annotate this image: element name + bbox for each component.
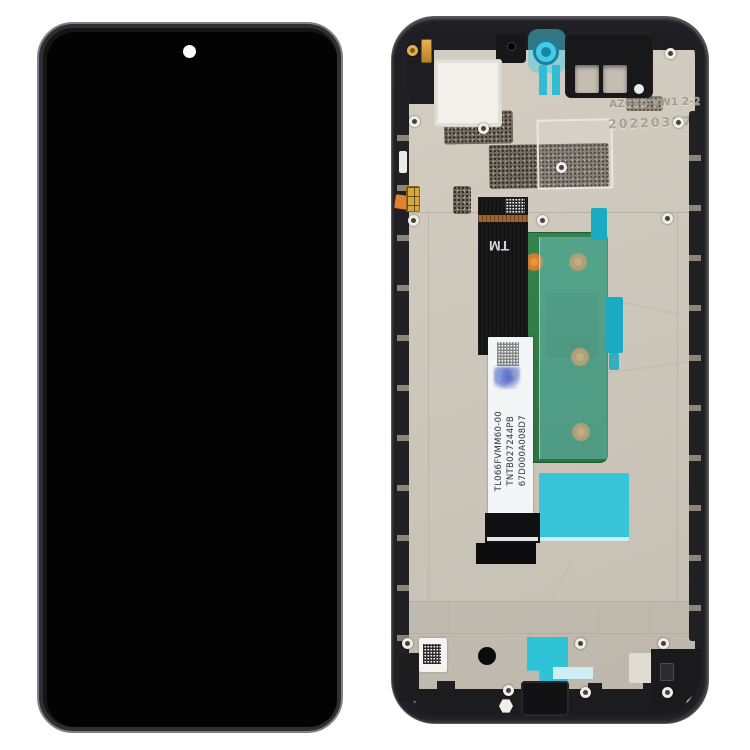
plate-seam	[649, 601, 650, 633]
camera-adhesive-tab	[539, 65, 547, 95]
screw	[478, 123, 489, 134]
gold-contact	[421, 39, 432, 63]
camera-adhesive-tab	[552, 65, 560, 95]
adhesive-cyan-band	[539, 473, 629, 541]
plate-seam	[407, 633, 695, 634]
part-number-line: 67D000A008D7	[518, 415, 528, 486]
rivet-dot	[634, 84, 644, 94]
part-number-line: TNTB027244PB	[506, 416, 516, 486]
screw	[409, 116, 420, 127]
corner-slot	[660, 663, 674, 681]
frame-hole	[478, 647, 496, 665]
bottom-speaker-housing	[521, 681, 569, 716]
label-qr-smudge	[497, 342, 519, 366]
adhesive-tab	[591, 208, 607, 240]
back-assembly: AZ01D YW1 2-2 20220327	[391, 16, 709, 724]
screw	[556, 162, 567, 173]
screw	[408, 215, 419, 226]
plate-seam	[598, 601, 599, 633]
screw	[658, 638, 669, 649]
qr-code	[423, 644, 441, 664]
left-rail	[397, 91, 409, 657]
front-camera-punch-hole	[183, 45, 196, 58]
plate-seam	[448, 601, 449, 633]
screw	[580, 687, 591, 698]
front-screen	[47, 32, 337, 727]
screw	[402, 638, 413, 649]
front-assembly	[37, 22, 343, 733]
board-connector-foot	[476, 543, 536, 564]
mic-hole	[507, 42, 516, 51]
top-right-plastic	[654, 30, 681, 46]
tm-text: TM	[489, 238, 509, 254]
bottom-left-plastic	[399, 653, 419, 701]
screw	[537, 215, 548, 226]
qr-sticker	[419, 638, 447, 672]
connector-white-stripe	[487, 537, 538, 541]
plate-seam	[428, 212, 429, 601]
screw	[665, 48, 676, 59]
copper-foil-patch	[453, 186, 471, 214]
plate-seam	[677, 212, 678, 601]
beige-tab	[629, 653, 653, 683]
top-speaker-plate	[434, 59, 502, 127]
screw	[662, 687, 673, 698]
part-number-block: TL066FVMM60-00 TNTB027244PB 67D000A008D7	[489, 389, 532, 513]
screw	[662, 213, 673, 224]
part-number-line: TL066FVMM60-00	[494, 411, 504, 491]
camera-lens-center	[541, 47, 551, 57]
camera-lens-opening	[533, 39, 559, 65]
right-rail	[689, 111, 701, 641]
screw	[673, 117, 684, 128]
screw	[503, 685, 514, 696]
camera-bracket-hole	[603, 65, 627, 93]
rail-slot	[399, 151, 407, 173]
label-ink-smudge	[494, 367, 520, 389]
adhesive-film	[539, 237, 608, 459]
adhesive-strip	[606, 297, 623, 353]
screw	[407, 45, 418, 56]
plate-outline-square	[536, 118, 613, 189]
camera-bracket-hole	[575, 65, 599, 93]
flex-tm-mark: TM	[484, 232, 514, 260]
gold-contact-pads	[406, 186, 420, 212]
pale-adhesive-strip	[553, 667, 593, 679]
plate-seam	[407, 212, 695, 213]
adhesive-strip-tail	[609, 353, 619, 370]
plate-seam	[407, 601, 695, 602]
screw	[575, 638, 586, 649]
flex-qr-patch	[505, 198, 525, 214]
product-photo: AZ01D YW1 2-2 20220327	[0, 0, 750, 750]
flex-copper-band	[478, 215, 528, 222]
